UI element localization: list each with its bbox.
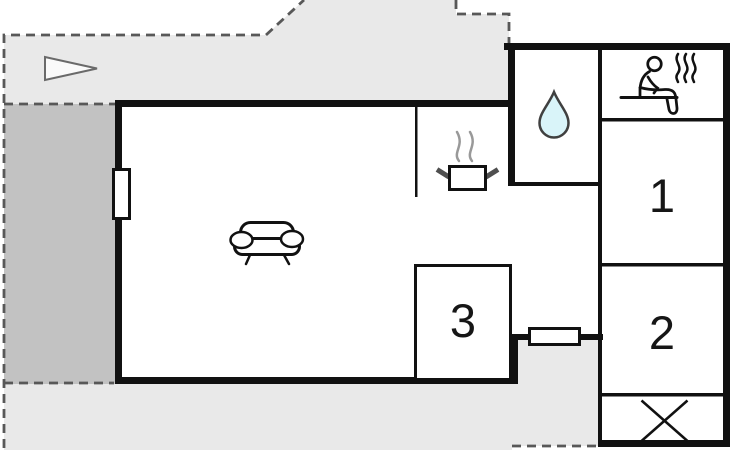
water-drop-icon: [540, 92, 569, 138]
wall-main-top: [115, 100, 512, 107]
sauna-icon: [621, 54, 695, 113]
wall-bathroom-bottom: [508, 182, 598, 186]
wall-rightwing-top: [504, 43, 730, 50]
wall-room2-bottom: [602, 393, 723, 397]
window-left-icon: [114, 170, 130, 219]
window-bottom-icon: [530, 329, 580, 345]
wall-right-outer: [723, 43, 730, 447]
room2-label: 2: [622, 307, 702, 359]
wall-bottom-right: [598, 440, 730, 447]
wall-bathroom-left: [508, 43, 515, 186]
patio-dark-area: [4, 104, 118, 384]
wall-room1-bottom: [602, 263, 723, 267]
room1-label: 1: [622, 170, 702, 222]
sofa-icon: [231, 223, 304, 265]
wall-main-left: [115, 100, 122, 384]
stove-pot-icon: [437, 132, 498, 190]
wall-kitchen-divider: [415, 107, 418, 197]
wall-rooms-column-left: [598, 50, 602, 447]
floor-plan-drawing: [0, 0, 730, 450]
wall-sauna-bottom: [602, 118, 723, 122]
room3-label: 3: [423, 295, 503, 347]
terrace-top-area: [4, 0, 509, 104]
floor-plan: 1 2 3: [0, 0, 730, 450]
wall-step-vertical: [511, 334, 518, 384]
cross-icon: [642, 401, 688, 442]
